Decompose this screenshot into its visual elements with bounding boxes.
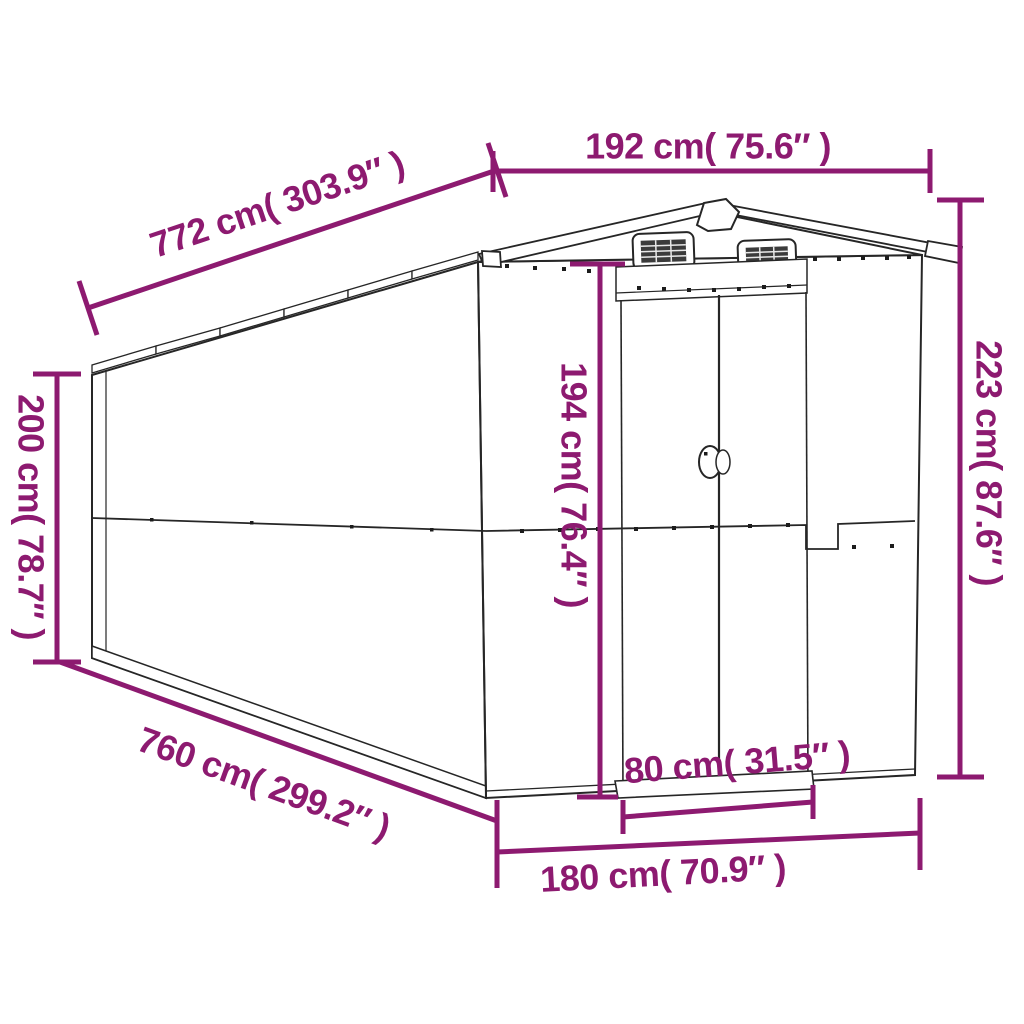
dim-door-width-label: 80 cm( 31.5″ ) — [623, 733, 852, 792]
dim-top-length-label: 772 cm( 303.9″ ) — [145, 142, 410, 266]
dim-door-height: 194 cm( 76.4″ ) — [554, 264, 626, 797]
shed-drawing — [92, 199, 962, 798]
dim-right-height: 223 cm( 87.6″ ) — [937, 200, 1010, 777]
product-dimension-diagram: 192 cm( 75.6″ ) 772 cm( 303.9″ ) 223 cm(… — [0, 0, 1024, 1024]
dim-bottom-width: 180 cm( 70.9″ ) — [497, 798, 920, 900]
dim-door-height-label: 194 cm( 76.4″ ) — [554, 362, 595, 608]
dim-left-height: 200 cm( 78.7″ ) — [11, 374, 82, 662]
front-wall-seam — [486, 521, 915, 549]
dim-right-height-label: 223 cm( 87.6″ ) — [969, 340, 1010, 586]
roof-eave-tabs — [92, 252, 478, 373]
roof-left-end-cap — [482, 251, 501, 267]
shed-rear-corner-edge — [92, 371, 106, 661]
door-handle-latch — [716, 450, 730, 474]
dim-bottom-width-label: 180 cm( 70.9″ ) — [539, 846, 787, 900]
dim-door-width-line — [623, 802, 813, 817]
door-rail — [616, 259, 807, 301]
screw-dots — [150, 255, 911, 549]
dim-left-height-label: 200 cm( 78.7″ ) — [11, 394, 52, 640]
door-handle-pin — [704, 452, 708, 456]
dim-top-width: 192 cm( 75.6″ ) — [493, 126, 930, 194]
shed-diagram-canvas: 192 cm( 75.6″ ) 772 cm( 303.9″ ) 223 cm(… — [0, 0, 1024, 1024]
door-left-edge — [621, 300, 623, 795]
door-right-edge — [806, 292, 808, 787]
sliding-doors — [621, 292, 808, 795]
roof-finial — [697, 199, 739, 231]
dim-top-width-label: 192 cm( 75.6″ ) — [585, 126, 831, 167]
roof-right-end-cap — [925, 241, 962, 263]
